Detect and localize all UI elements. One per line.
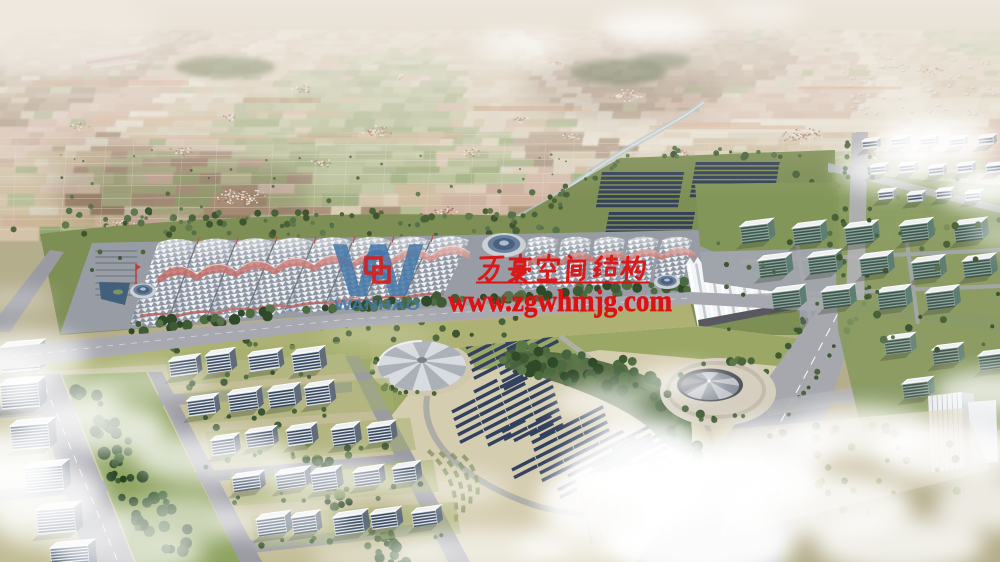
svg-text:WANHAO: WANHAO xyxy=(334,297,420,314)
svg-text:www.zgwhmjg.com: www.zgwhmjg.com xyxy=(448,283,672,318)
